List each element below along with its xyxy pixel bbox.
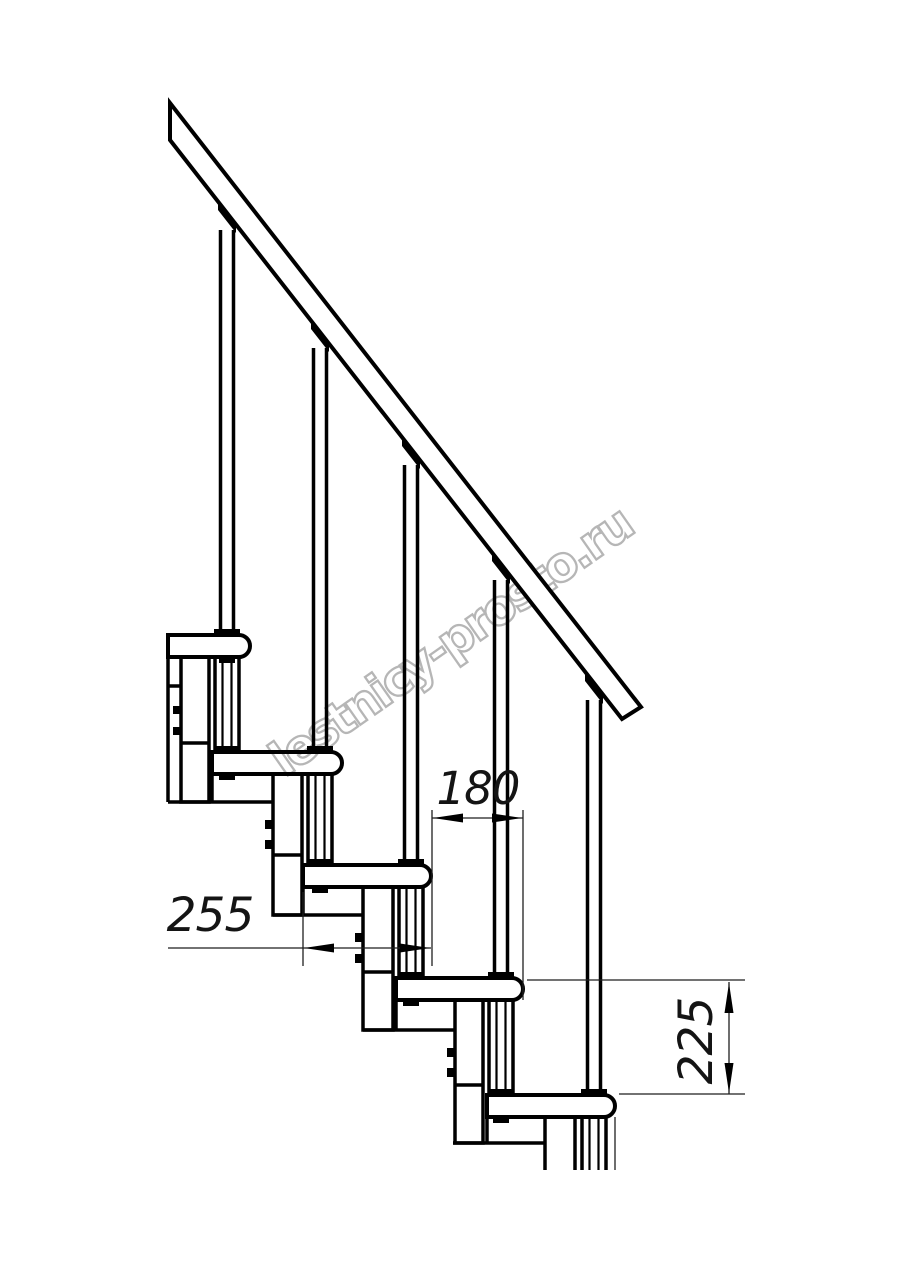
support-pipe-3 [399,887,423,978]
foot-baluster-4 [488,972,514,978]
support-pipe-2 [308,774,332,865]
baluster-2 [314,348,327,754]
foot-pipe-3 [398,972,424,978]
drawing-page: lestnicy-prosto.ru [0,0,914,1280]
foot-baluster-1 [214,629,240,635]
baluster-5 [588,700,601,1097]
arrow-up-icon [725,983,734,1013]
nut-tread-3 [312,887,328,893]
foot-pipe-2 [307,859,333,865]
tread-5 [487,1095,615,1117]
foot-baluster-5 [581,1089,607,1095]
support-column-3 [355,887,393,1030]
tread-3 [303,865,431,887]
support-pipe-5 [582,1117,606,1170]
dim-label-180: 180 [437,762,520,815]
support-pipe-4 [489,1000,513,1095]
support-column-5 [545,1117,575,1170]
foot-baluster-3 [398,859,424,865]
dimension-225: 225 [527,980,745,1170]
nut-tread-1 [219,657,235,663]
nut-tread-5 [493,1117,509,1123]
arrow-left-icon [304,944,334,953]
arrow-down-icon [725,1063,734,1093]
foot-pipe-4 [488,1089,514,1095]
tread-4 [396,978,523,1000]
baluster-1 [221,230,234,637]
foot-pipe-1 [214,746,240,752]
support-pipe-1 [215,657,239,752]
tread-1 [168,635,250,657]
support-column-2 [265,774,302,915]
nut-tread-2 [219,774,235,780]
dimension-180: 180 [432,762,523,1000]
stair-drawing: lestnicy-prosto.ru [0,0,914,1280]
dim-label-255: 255 [167,888,254,943]
nut-tread-4 [403,1000,419,1006]
support-column-4 [447,1000,483,1143]
support-column-1 [173,657,209,802]
foot-baluster-2 [307,746,333,752]
dim-label-225: 225 [669,998,724,1085]
